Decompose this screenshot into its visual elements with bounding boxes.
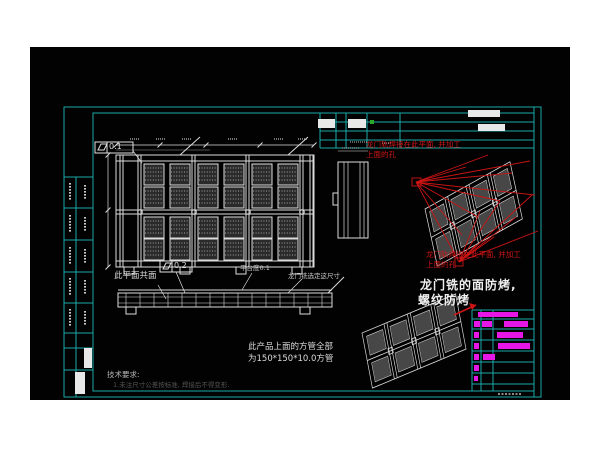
cad-drawing-canvas: 0.1 0.2 此平面共面 平台度0.1 龙门铣选定这尺寸 龙门轨焊接在此平面,… bbox=[30, 47, 570, 400]
flatness-symbol-a bbox=[98, 144, 107, 150]
cad-screenshot-page: 0.1 0.2 此平面共面 平台度0.1 龙门铣选定这尺寸 龙门轨焊接在此平面,… bbox=[0, 0, 600, 450]
main-front-view bbox=[108, 137, 314, 274]
bom-table-entries bbox=[474, 312, 530, 381]
flatness-symbol-b bbox=[163, 263, 171, 269]
end-view bbox=[333, 151, 368, 238]
cad-line-art bbox=[30, 47, 570, 400]
side-elevation-view bbox=[118, 273, 344, 314]
iso-view-lower bbox=[362, 294, 466, 388]
